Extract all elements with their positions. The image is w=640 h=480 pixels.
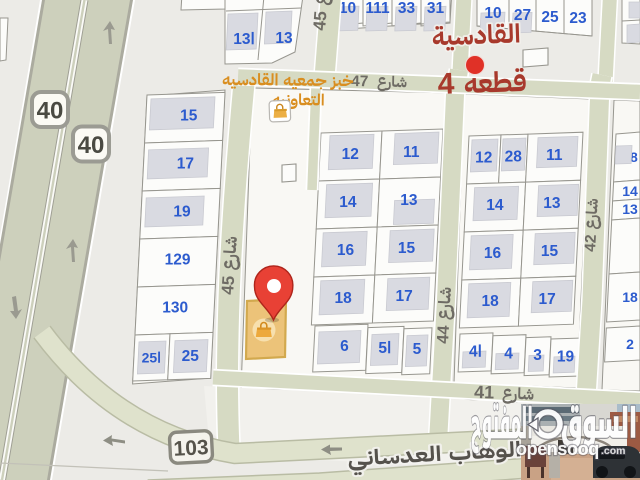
svg-text:17: 17 xyxy=(177,156,194,173)
svg-text:12: 12 xyxy=(342,146,359,163)
svg-text:5ا: 5ا xyxy=(378,340,391,357)
svg-text:11: 11 xyxy=(403,144,420,161)
svg-text:40: 40 xyxy=(37,98,64,125)
svg-text:45: 45 xyxy=(218,275,238,295)
svg-text:16: 16 xyxy=(337,242,355,259)
svg-text:4ا: 4ا xyxy=(469,344,482,361)
svg-text:18: 18 xyxy=(481,293,499,310)
svg-text:13: 13 xyxy=(543,195,561,212)
svg-text:17: 17 xyxy=(395,288,412,305)
svg-text:47: 47 xyxy=(351,73,369,90)
svg-text:25: 25 xyxy=(541,9,559,26)
svg-text:19: 19 xyxy=(173,204,191,221)
svg-text:opensooq: opensooq xyxy=(516,439,599,459)
svg-text:103: 103 xyxy=(173,436,209,461)
svg-text:14: 14 xyxy=(486,197,504,214)
svg-text:16: 16 xyxy=(484,245,502,262)
svg-text:18: 18 xyxy=(622,289,638,305)
svg-text:15: 15 xyxy=(180,108,198,125)
svg-text:13: 13 xyxy=(400,192,418,209)
svg-text:41: 41 xyxy=(474,382,495,403)
svg-text:19: 19 xyxy=(557,349,575,366)
svg-text:4: 4 xyxy=(437,67,455,101)
svg-text:23: 23 xyxy=(569,10,587,27)
svg-text:13: 13 xyxy=(622,201,638,217)
svg-text:25: 25 xyxy=(182,348,200,365)
svg-text:129: 129 xyxy=(165,252,191,269)
svg-text:45: 45 xyxy=(309,10,330,31)
svg-text:31: 31 xyxy=(427,0,445,17)
svg-text:15: 15 xyxy=(541,243,559,260)
svg-text:4: 4 xyxy=(504,345,513,362)
svg-text:17: 17 xyxy=(538,291,555,308)
svg-text:13: 13 xyxy=(275,30,293,47)
svg-text:2: 2 xyxy=(626,336,634,352)
svg-text:13ا: 13ا xyxy=(233,31,255,48)
svg-text:.com: .com xyxy=(601,445,626,457)
svg-text:44: 44 xyxy=(434,324,453,344)
svg-text:130: 130 xyxy=(162,300,188,317)
svg-text:42: 42 xyxy=(582,234,600,252)
svg-text:12: 12 xyxy=(475,150,492,167)
svg-text:10: 10 xyxy=(484,5,501,22)
svg-text:11: 11 xyxy=(546,147,563,164)
svg-text:14: 14 xyxy=(622,183,638,199)
svg-text:40: 40 xyxy=(78,132,105,159)
svg-text:5: 5 xyxy=(413,341,422,358)
svg-text:3: 3 xyxy=(533,347,542,364)
svg-text:111: 111 xyxy=(365,0,390,17)
svg-text:14: 14 xyxy=(339,194,357,211)
svg-text:25ا: 25ا xyxy=(142,349,161,365)
svg-text:6: 6 xyxy=(340,338,349,355)
svg-text:15: 15 xyxy=(398,240,416,257)
svg-text:33: 33 xyxy=(398,0,416,17)
svg-text:28: 28 xyxy=(505,149,523,166)
svg-text:18: 18 xyxy=(334,290,352,307)
svg-text:27: 27 xyxy=(514,7,531,24)
